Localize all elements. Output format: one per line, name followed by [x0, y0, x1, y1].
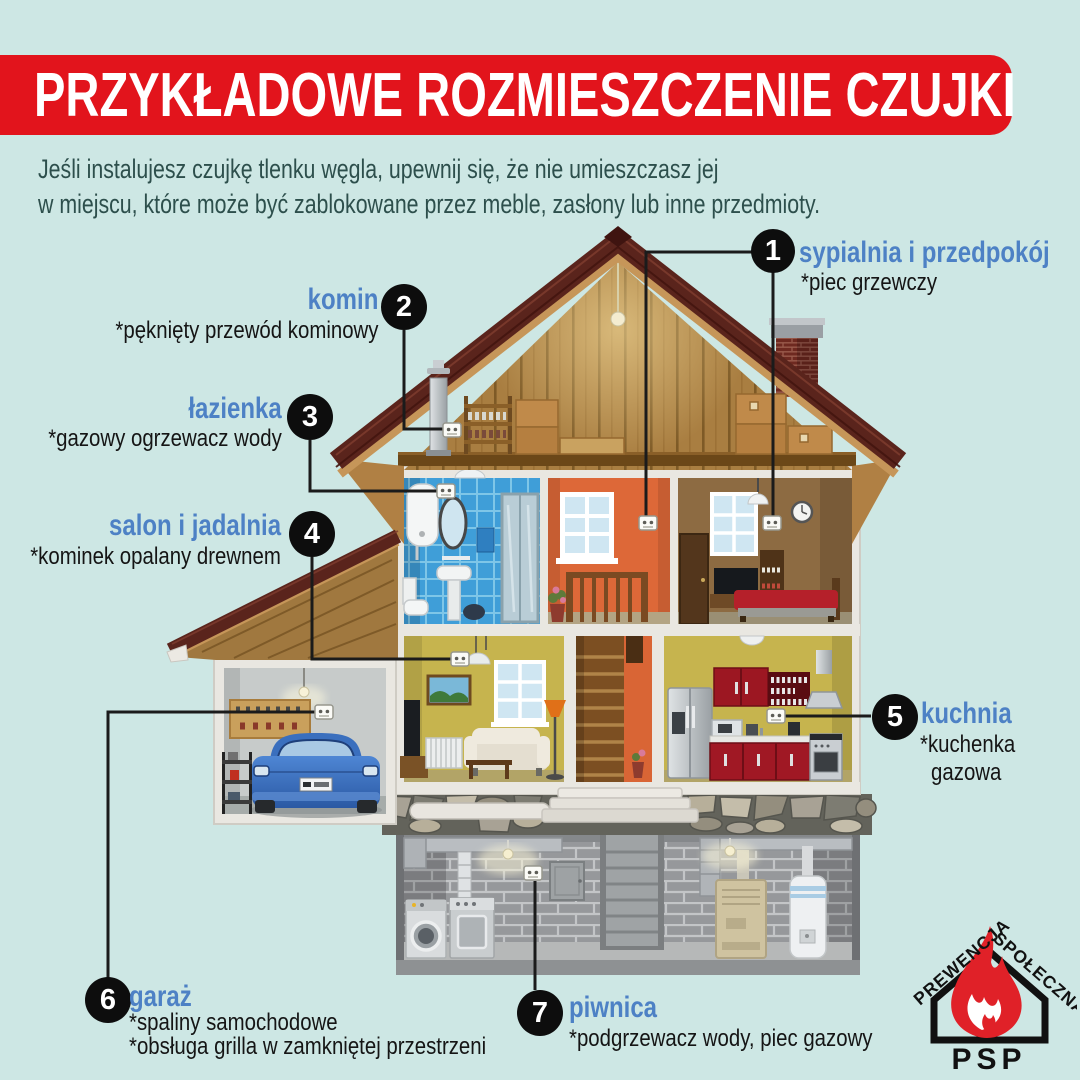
wall-clock	[792, 502, 812, 522]
intro-text: Jeśli instalujesz czujkę tlenku węgla, u…	[38, 152, 820, 221]
foundation-white-pipe	[410, 803, 550, 819]
callout-1-note: *piec grzewczy	[801, 269, 937, 297]
callout-7-note: *podgrzewacz wody, piec gazowy	[569, 1025, 873, 1053]
entry-steps	[542, 788, 698, 822]
kitchen-counter	[710, 720, 810, 780]
electrical-panel	[550, 862, 584, 900]
laundry-bowl	[463, 604, 485, 620]
shower-cabin	[502, 494, 538, 622]
bathroom-shelf	[442, 556, 470, 560]
callout-1-label: sypialnia i przedpokój	[799, 236, 1050, 270]
detector-bedroom	[763, 516, 781, 530]
callout-6-digit: 6	[100, 984, 116, 1017]
detector-garage	[315, 705, 333, 719]
bathroom-mirror	[440, 498, 466, 548]
infographic-poster: PRZYKŁADOWE ROZMIESZCZENIE CZUJKI Jeśli …	[0, 0, 1080, 1080]
callout-3-label: łazienka	[189, 392, 282, 426]
bedroom-door	[680, 534, 708, 624]
floor-divider	[396, 624, 860, 636]
landing-window	[556, 492, 618, 564]
detector-attic	[443, 423, 461, 437]
callout-2-number: 2	[381, 284, 427, 330]
callout-3-digit: 3	[302, 401, 318, 434]
callout-4-label: salon i jadalnia	[109, 509, 281, 543]
callout-5-label: kuchnia	[921, 697, 1012, 731]
detector-basement	[524, 866, 542, 880]
callout-5-note-1: *kuchenka	[920, 731, 1015, 759]
washing-machine	[406, 900, 446, 958]
callout-3-number: 3	[287, 394, 333, 440]
staircase	[576, 636, 652, 782]
callout-5-notes: *kuchenka gazowa	[920, 731, 1015, 787]
title-banner: PRZYKŁADOWE ROZMIESZCZENIE CZUJKI	[0, 55, 1012, 135]
callout-7-digit: 7	[532, 997, 548, 1030]
bedroom	[678, 478, 852, 624]
callout-3-note: *gazowy ogrzewacz wody	[48, 425, 282, 453]
callout-6-note-2: *obsługa grilla w zamkniętej przestrzeni	[129, 1033, 486, 1061]
pegboard-tools	[230, 700, 310, 738]
callout-7-number: 7	[517, 990, 563, 1036]
callout-5-note-2: gazowa	[931, 759, 1015, 787]
callout-4-note: *kominek opalany drewnem	[30, 543, 281, 571]
spice-shelves	[768, 672, 810, 706]
radiator	[426, 738, 462, 768]
callout-2-note: *pęknięty przewód kominowy	[115, 317, 378, 345]
basement-stairs	[600, 834, 664, 950]
upper-cabinets	[714, 668, 768, 706]
callout-1-digit: 1	[765, 235, 781, 268]
furnace	[716, 880, 766, 958]
callout-5-number: 5	[872, 694, 918, 740]
callout-2-digit: 2	[396, 291, 412, 324]
dryer	[450, 898, 494, 958]
basement	[396, 834, 860, 975]
landscape-painting	[428, 676, 470, 704]
landing-hallway	[548, 478, 670, 624]
detector-bathroom	[437, 484, 455, 498]
page-title: PRZYKŁADOWE ROZMIESZCZENIE CZUJKI	[34, 60, 1016, 131]
intro-line-2: w miejscu, które może być zablokowane pr…	[38, 187, 820, 222]
towel	[477, 528, 494, 552]
stove	[810, 734, 842, 780]
garage	[214, 658, 396, 824]
callout-5-digit: 5	[887, 701, 903, 734]
basement-water-heater	[790, 876, 826, 958]
intro-line-1: Jeśli instalujesz czujkę tlenku węgla, u…	[38, 152, 820, 187]
logo-abbr: PSP	[951, 1043, 1026, 1076]
fridge	[668, 688, 712, 778]
detector-living-room	[451, 652, 469, 666]
detector-landing	[639, 516, 657, 530]
callout-2-label: komin	[307, 283, 378, 317]
callout-6-number: 6	[85, 977, 131, 1023]
callout-4-digit: 4	[304, 518, 320, 551]
psp-prevention-logo: PREWENCJA SPOŁECZNA PSP	[902, 912, 1077, 1077]
callout-7-label: piwnica	[569, 991, 657, 1025]
callout-4-number: 4	[289, 511, 335, 557]
living-window	[491, 660, 549, 727]
kitchen	[664, 636, 852, 782]
callout-1-number: 1	[751, 229, 795, 273]
detector-kitchen	[767, 709, 785, 723]
